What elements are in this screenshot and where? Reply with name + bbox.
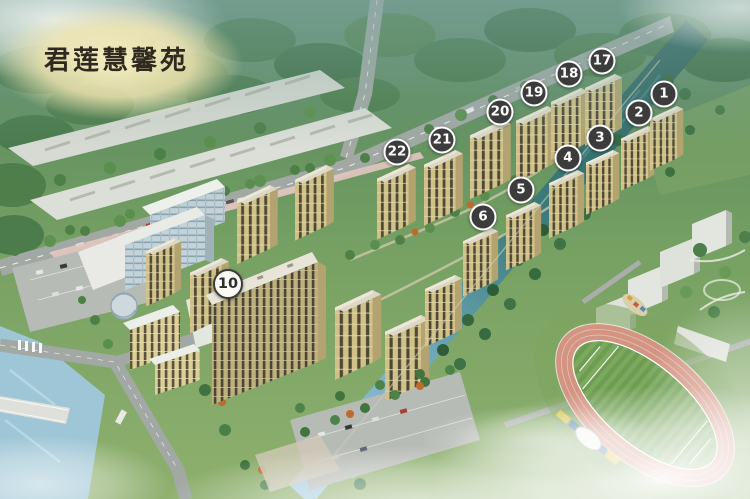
- building-marker-19[interactable]: 19: [521, 80, 548, 107]
- building-marker-18[interactable]: 18: [556, 61, 583, 88]
- building-marker-3[interactable]: 3: [587, 125, 614, 152]
- building-marker-2[interactable]: 2: [626, 100, 653, 127]
- project-title: 君莲慧馨苑: [44, 40, 189, 77]
- building-marker-4[interactable]: 4: [555, 145, 582, 172]
- building-marker-6[interactable]: 6: [470, 204, 497, 231]
- building-marker-17[interactable]: 17: [589, 48, 616, 75]
- building-marker-21[interactable]: 21: [429, 127, 456, 154]
- building-marker-5[interactable]: 5: [508, 177, 535, 204]
- building-marker-22[interactable]: 22: [384, 139, 411, 166]
- masterplan-stage: 君莲慧馨苑 12345610171819202122: [0, 0, 750, 499]
- building-marker-20[interactable]: 20: [487, 99, 514, 126]
- building-marker-10[interactable]: 10: [213, 269, 243, 299]
- building-marker-1[interactable]: 1: [651, 81, 678, 108]
